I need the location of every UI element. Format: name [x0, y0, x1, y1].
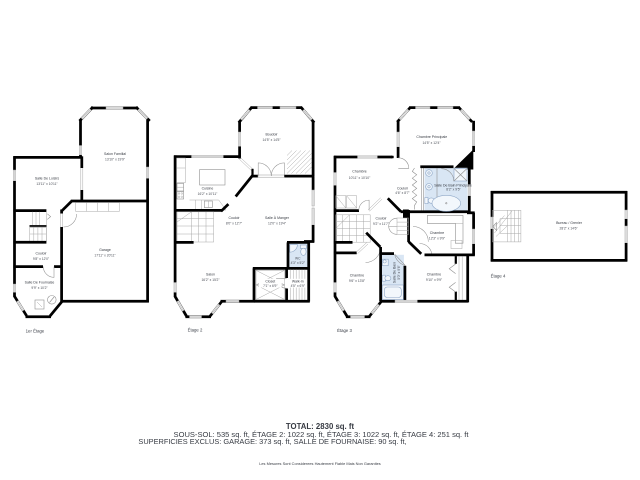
- svg-text:4'3" x 5'2": 4'3" x 5'2": [291, 261, 306, 265]
- svg-text:16'2" x 10'11": 16'2" x 10'11": [198, 192, 218, 196]
- svg-text:16'2" x 15'2": 16'2" x 15'2": [201, 278, 220, 282]
- svg-text:Salle À Manger: Salle À Manger: [265, 216, 290, 220]
- svg-text:Garage: Garage: [99, 248, 111, 252]
- svg-text:Boudoir: Boudoir: [265, 132, 278, 136]
- svg-text:13'10" x 19'9": 13'10" x 19'9": [105, 158, 126, 162]
- svg-text:Salle De Bain: Salle De Bain: [393, 262, 397, 283]
- svg-text:Étage 2: Étage 2: [188, 328, 203, 333]
- svg-text:Chambre: Chambre: [350, 273, 364, 277]
- svg-text:1er Étage: 1er Étage: [26, 329, 45, 334]
- svg-text:9'8" x 12'0": 9'8" x 12'0": [33, 257, 50, 261]
- svg-text:9'9" x 10'2": 9'9" x 10'2": [31, 286, 48, 290]
- svg-text:10'11" x 10'10": 10'11" x 10'10": [349, 176, 371, 180]
- svg-text:Couloir: Couloir: [35, 251, 47, 255]
- svg-text:7'1" x 6'9": 7'1" x 6'9": [263, 284, 278, 288]
- svg-text:4'5" x 6'9": 4'5" x 6'9": [291, 284, 306, 288]
- svg-text:Closet: Closet: [265, 280, 275, 284]
- svg-text:9'6" x 13'8": 9'6" x 13'8": [349, 279, 366, 283]
- svg-text:Chambre: Chambre: [430, 231, 444, 235]
- svg-text:Couloir: Couloir: [375, 217, 387, 221]
- svg-text:Salle De Loisirs: Salle De Loisirs: [35, 176, 60, 180]
- svg-text:8'2" x 9'5": 8'2" x 9'5": [446, 188, 461, 192]
- svg-text:17'11" x 20'11": 17'11" x 20'11": [94, 254, 116, 258]
- svg-text:12'3" x 9'9": 12'3" x 9'9": [429, 236, 446, 240]
- svg-text:Salon: Salon: [206, 272, 215, 276]
- svg-text:SUPERFICIES EXCLUS: GARAGE: 37: SUPERFICIES EXCLUS: GARAGE: 373 sq. ft, …: [138, 437, 406, 446]
- svg-text:9'2" x 11'7": 9'2" x 11'7": [373, 222, 390, 226]
- svg-text:Chambre: Chambre: [427, 273, 441, 277]
- svg-text:Couloir: Couloir: [228, 216, 240, 220]
- svg-text:Les Mesures Sont Considerees H: Les Mesures Sont Considerees Hautement F…: [259, 461, 381, 466]
- svg-text:Étage 3: Étage 3: [337, 328, 352, 333]
- svg-text:28'2" x 14'6": 28'2" x 14'6": [560, 227, 579, 231]
- svg-text:Étage 4: Étage 4: [491, 273, 506, 278]
- svg-text:8'0" x 12'7": 8'0" x 12'7": [226, 221, 243, 225]
- svg-text:14'5" x 12'4": 14'5" x 12'4": [422, 141, 441, 145]
- svg-text:Cuisine: Cuisine: [202, 186, 214, 190]
- svg-text:5'0" x 9'6": 5'0" x 9'6": [397, 264, 401, 279]
- svg-text:Chambre Principale: Chambre Principale: [416, 135, 447, 139]
- svg-text:4'6" x 8'7": 4'6" x 8'7": [395, 191, 410, 195]
- svg-text:Walk-In: Walk-In: [292, 280, 304, 284]
- svg-text:Chambre: Chambre: [352, 170, 366, 174]
- svg-text:13'11" x 10'11": 13'11" x 10'11": [36, 182, 58, 186]
- svg-text:Salle De Fournaise: Salle De Fournaise: [25, 281, 55, 285]
- svg-text:Bureau / Grenier: Bureau / Grenier: [556, 221, 583, 225]
- svg-text:12'0" x 19'4": 12'0" x 19'4": [268, 221, 287, 225]
- svg-text:9'10" x 9'9": 9'10" x 9'9": [426, 278, 443, 282]
- svg-text:14'5" x 14'5": 14'5" x 14'5": [262, 138, 281, 142]
- svg-text:Salon Familial: Salon Familial: [104, 152, 126, 156]
